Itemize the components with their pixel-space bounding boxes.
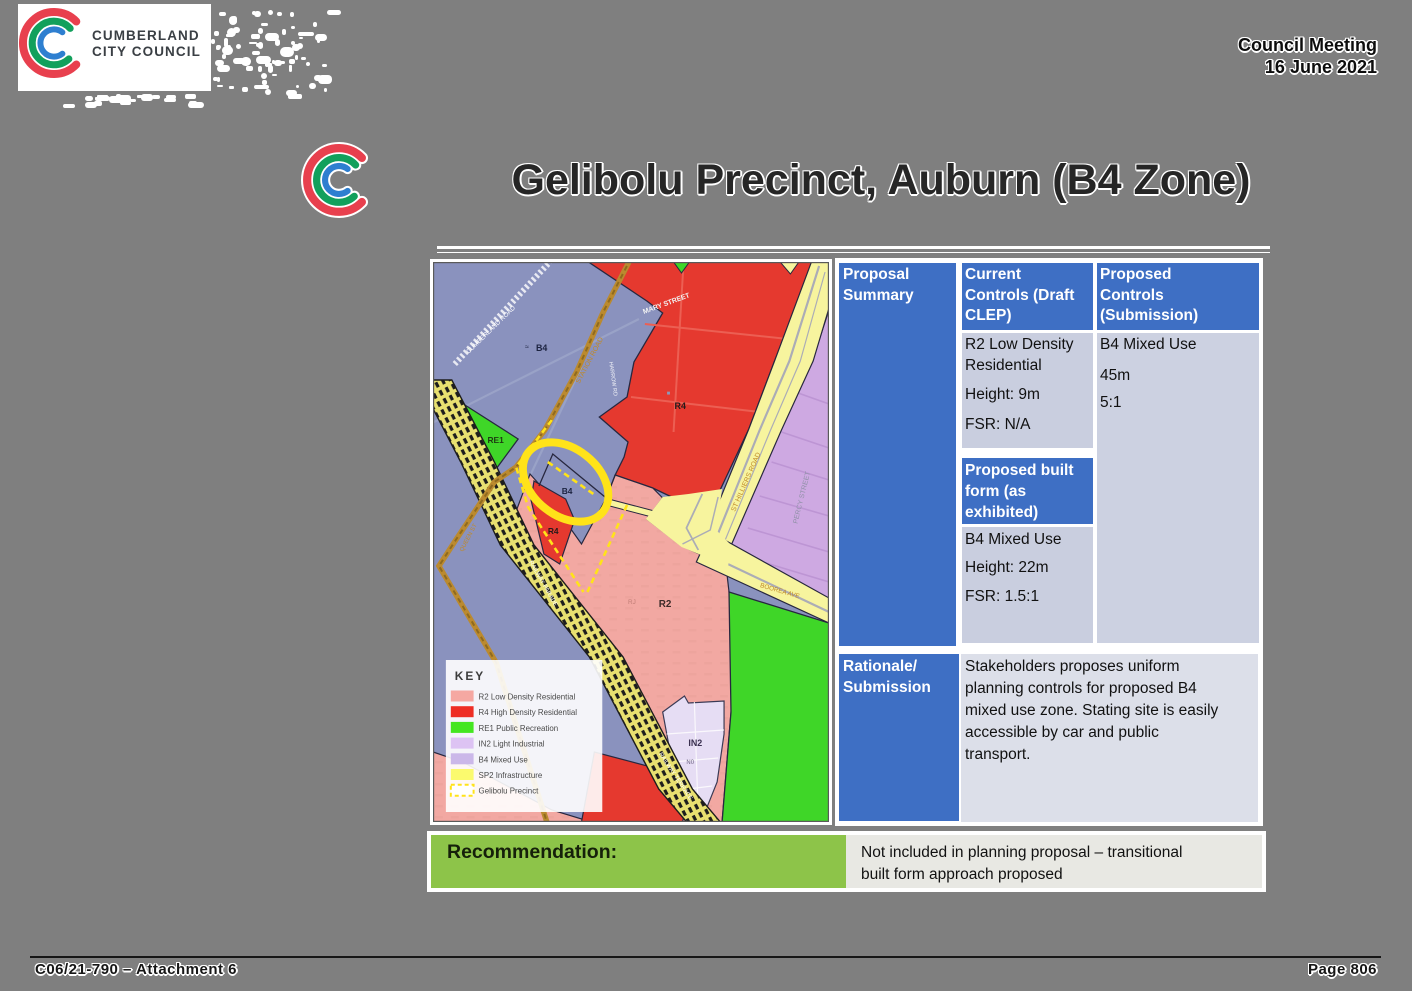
svg-text:IN2: IN2: [688, 738, 702, 748]
svg-text:B4: B4: [562, 486, 573, 496]
svg-text:RE1: RE1: [487, 435, 504, 445]
svg-text:≈: ≈: [525, 344, 529, 351]
svg-text:N0: N0: [686, 760, 694, 766]
svg-text:Gelibolu Precinct: Gelibolu Precinct: [479, 787, 540, 796]
svg-text:SP2 Infrastructure: SP2 Infrastructure: [479, 771, 543, 780]
svg-text:B4: B4: [536, 343, 547, 353]
svg-text:R4: R4: [548, 526, 559, 536]
svg-text:RJ: RJ: [628, 599, 636, 606]
svg-text:B4 Mixed Use: B4 Mixed Use: [479, 755, 529, 764]
svg-text:R4 High Density Residential: R4 High Density Residential: [479, 708, 578, 717]
svg-text:RE1 Public Recreation: RE1 Public Recreation: [479, 724, 559, 733]
svg-text:R2 Low Density Residential: R2 Low Density Residential: [479, 692, 576, 701]
svg-text:IN2 Light Industrial: IN2 Light Industrial: [479, 740, 545, 749]
svg-text:R4: R4: [675, 401, 686, 411]
svg-text:KEY: KEY: [455, 669, 485, 683]
svg-text:■: ■: [667, 391, 671, 397]
svg-text:R2: R2: [659, 599, 672, 610]
